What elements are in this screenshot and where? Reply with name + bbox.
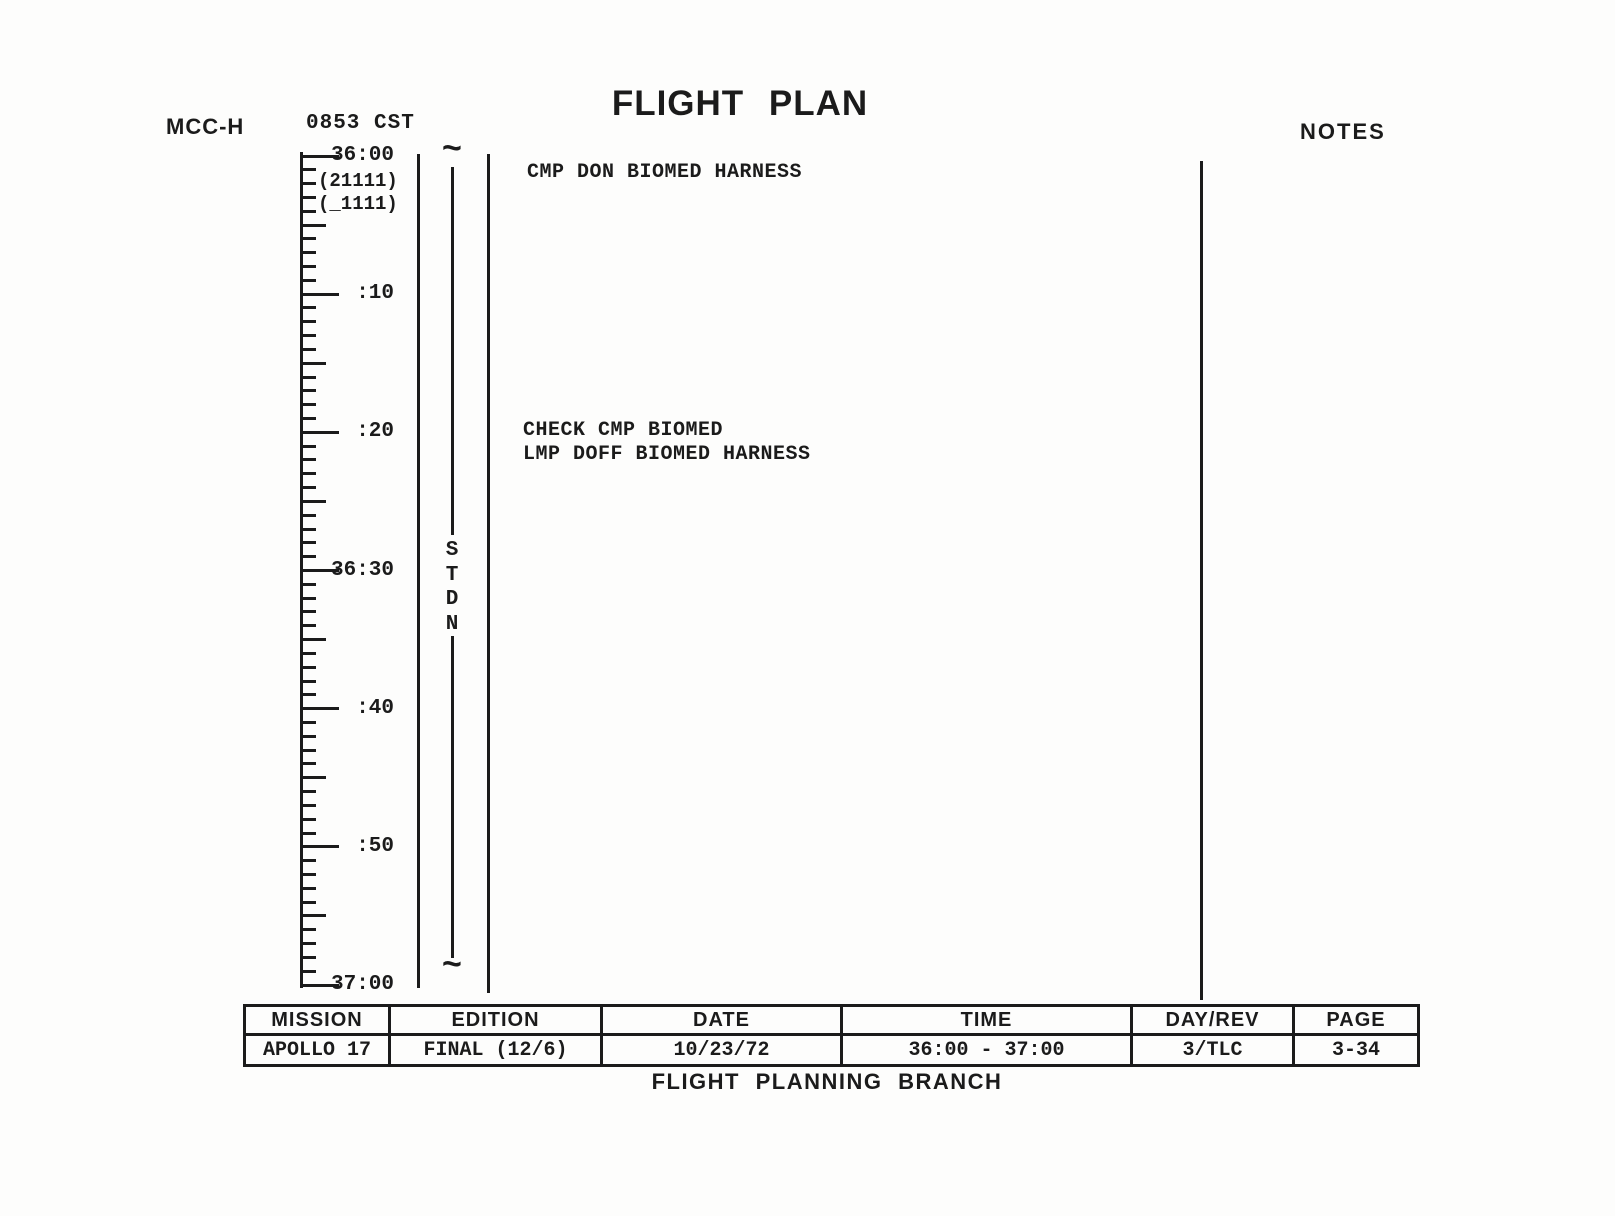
stdn-coverage-line-lower: [451, 636, 454, 958]
ruler-tick: [300, 389, 316, 392]
ruler-tick: [300, 873, 316, 876]
ruler-tick: [300, 693, 316, 696]
activity-cmp-don-biomed-harness: CMP DON BIOMED HARNESS: [527, 161, 802, 184]
ruler-tick: [300, 348, 316, 351]
ruler-tick: [300, 251, 316, 254]
ruler-tick: [300, 776, 326, 779]
crew-status-code-line2: (_1111): [318, 193, 408, 215]
ruler-tick: [300, 804, 316, 807]
ruler-tick: [300, 445, 316, 448]
ruler-tick: [300, 403, 316, 406]
stdn-letter: D: [442, 589, 462, 611]
ruler-tick: [300, 749, 316, 752]
ruler-tick: [300, 597, 316, 600]
ruler-tick: [300, 237, 316, 240]
stdn-coverage-line-upper: [451, 167, 454, 535]
ruler-tick: [300, 666, 316, 669]
ruler-tick: [300, 638, 326, 641]
ruler-tick: [300, 472, 316, 475]
ruler-time-label: 36:30: [304, 560, 394, 582]
ruler-tick: [300, 583, 316, 586]
table-header-mission: MISSION: [245, 1006, 390, 1035]
ruler-tick: [300, 762, 316, 765]
ruler-tick: [300, 555, 316, 558]
ruler-tick: [300, 417, 316, 420]
ruler-tick: [300, 942, 316, 945]
coverage-column-line-left: [417, 154, 420, 988]
ruler-tick: [300, 928, 316, 931]
ruler-tick: [300, 956, 316, 959]
ruler-time-label: :40: [304, 698, 394, 720]
ruler-tick: [300, 859, 316, 862]
table-value-day-rev: 3/TLC: [1132, 1035, 1294, 1066]
ruler-tick: [300, 610, 316, 613]
notes-column-line: [1200, 161, 1203, 1000]
ruler-tick: [300, 196, 316, 199]
notes-column-label: NOTES: [1300, 119, 1420, 145]
ruler-tick: [300, 887, 316, 890]
table-value-page: 3-34: [1294, 1035, 1419, 1066]
ruler-time-label: :50: [304, 836, 394, 858]
ruler-tick: [300, 182, 316, 185]
ruler-tick: [300, 914, 326, 917]
ruler-tick: [300, 528, 316, 531]
activity-lmp-doff-biomed-harness: LMP DOFF BIOMED HARNESS: [523, 443, 811, 466]
crew-status-code-line1: (21111): [318, 170, 408, 192]
ruler-time-label: 36:00: [304, 145, 394, 167]
ruler-time-label: :10: [304, 283, 394, 305]
table-value-edition: FINAL (12/6): [390, 1035, 602, 1066]
ruler-tick: [300, 376, 316, 379]
ruler-tick: [300, 901, 316, 904]
table-header-page: PAGE: [1294, 1006, 1419, 1035]
ruler-tick: [300, 970, 316, 973]
footer-branch-label: FLIGHT PLANNING BRANCH: [597, 1069, 1057, 1095]
ruler-tick: [300, 168, 316, 171]
page-title: FLIGHT PLAN: [590, 84, 890, 124]
table-value-date: 10/23/72: [602, 1035, 842, 1066]
ruler-tick: [300, 362, 326, 365]
ruler-tick: [300, 652, 316, 655]
ruler-tick: [300, 818, 316, 821]
table-header-date: DATE: [602, 1006, 842, 1035]
activity-check-cmp-biomed: CHECK CMP BIOMED: [523, 419, 723, 442]
ruler-tick: [300, 334, 316, 337]
ruler-tick: [300, 680, 316, 683]
table-header-day-rev: DAY/REV: [1132, 1006, 1294, 1035]
mission-info-table: MISSIONEDITIONDATETIMEDAY/REVPAGEAPOLLO …: [243, 1004, 1420, 1067]
ruler-tick: [300, 832, 316, 835]
ruler-tick: [300, 224, 326, 227]
ruler-tick: [300, 210, 316, 213]
table-header-edition: EDITION: [390, 1006, 602, 1035]
ruler-tick: [300, 721, 316, 724]
coverage-continuation-squiggle-top: ~: [438, 136, 466, 166]
station-label: MCC-H: [166, 114, 244, 140]
stdn-letter: N: [442, 614, 462, 636]
ruler-tick: [300, 306, 316, 309]
table-value-time: 36:00 - 37:00: [842, 1035, 1132, 1066]
ruler-tick: [300, 624, 316, 627]
activity-column-line: [487, 154, 490, 993]
stdn-letter: S: [442, 540, 462, 562]
ruler-tick: [300, 790, 316, 793]
flight-plan-document: MCC-H 0853 CST FLIGHT PLAN NOTES 36:00:1…: [0, 0, 1615, 1216]
ruler-tick: [300, 735, 316, 738]
ruler-time-label: :20: [304, 421, 394, 443]
ruler-tick: [300, 514, 316, 517]
ruler-time-label: 37:00: [304, 974, 394, 996]
ruler-tick: [300, 265, 316, 268]
coverage-continuation-squiggle-bottom: ~: [438, 952, 466, 982]
ruler-tick: [300, 500, 326, 503]
ruler-tick: [300, 458, 316, 461]
table-header-time: TIME: [842, 1006, 1132, 1035]
ruler-tick: [300, 279, 316, 282]
ruler-tick: [300, 541, 316, 544]
table-value-mission: APOLLO 17: [245, 1035, 390, 1066]
ruler-tick: [300, 320, 316, 323]
ruler-tick: [300, 486, 316, 489]
stdn-letter: T: [442, 565, 462, 587]
